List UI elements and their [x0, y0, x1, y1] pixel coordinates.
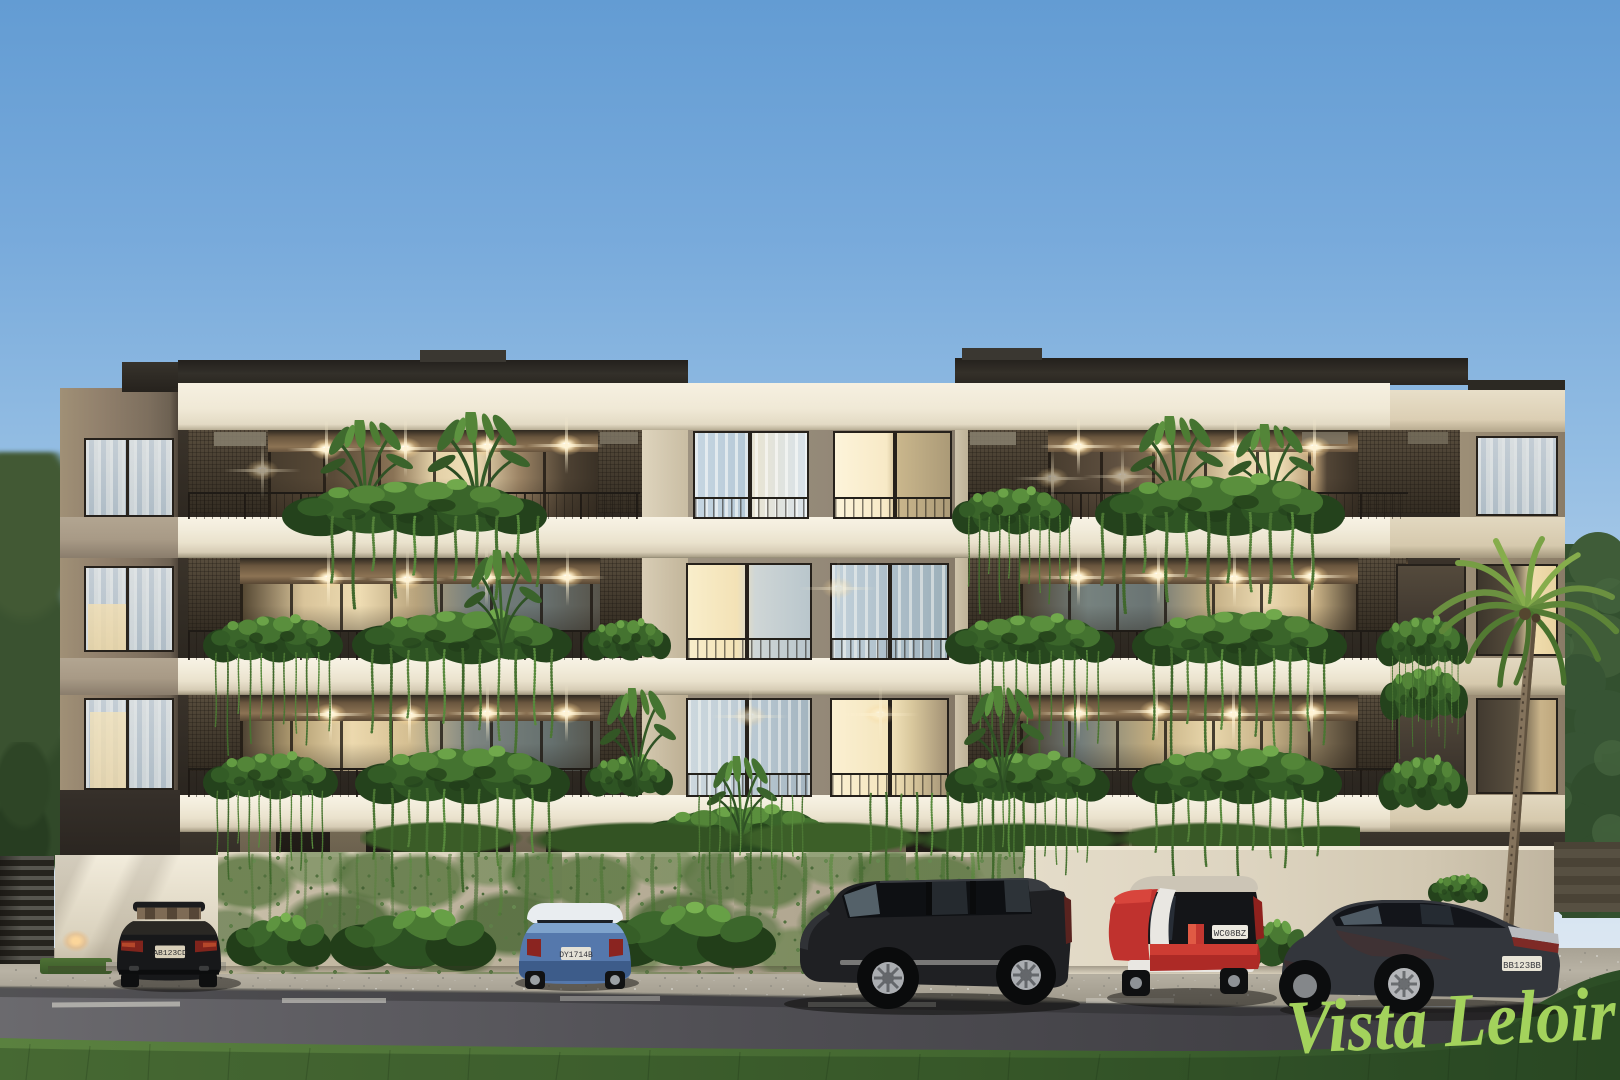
svg-text:AB123CD: AB123CD	[153, 949, 187, 958]
svg-text:DY1714B: DY1714B	[559, 951, 593, 960]
svg-text:Vista Leloir: Vista Leloir	[1284, 972, 1619, 1070]
svg-text:WC08BZ: WC08BZ	[1214, 929, 1247, 939]
